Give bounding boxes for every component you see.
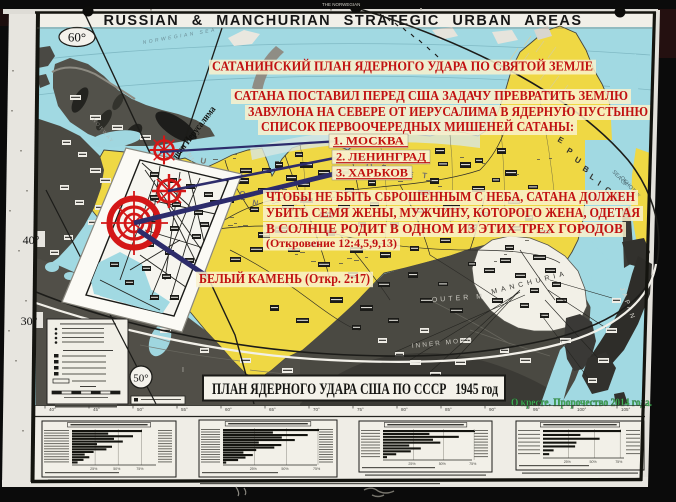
svg-text:I: I	[182, 367, 184, 374]
svg-text:2. ЛЕНИНГРАД: 2. ЛЕНИНГРАД	[336, 150, 427, 164]
svg-text:3. ХАРЬКОВ: 3. ХАРЬКОВ	[336, 166, 408, 180]
svg-text:50%: 50%	[113, 467, 121, 471]
svg-text:50%: 50%	[590, 460, 598, 464]
svg-text:В СОЛНЦЕ РОДИТ В ОДНОМ ИЗ ЭТИХ: В СОЛНЦЕ РОДИТ В ОДНОМ ИЗ ЭТИХ ТРЕХ ГОРО…	[266, 221, 623, 236]
svg-text:УБИТЬ СЕМЯ ЖЕНЫ, МУЖЧИНУ, КОТО: УБИТЬ СЕМЯ ЖЕНЫ, МУЖЧИНУ, КОТОРОГО ЖЕНА,…	[266, 205, 640, 220]
svg-text:55°: 55°	[181, 407, 188, 412]
svg-text:70°: 70°	[313, 407, 320, 412]
svg-text:75%: 75%	[469, 462, 477, 466]
svg-text:85°: 85°	[445, 407, 452, 412]
svg-text:25%: 25%	[408, 462, 416, 466]
svg-text:50%: 50%	[281, 467, 289, 471]
svg-text:ЧТОБЫ НЕ БЫТЬ СБРОШЕННЫМ С НЕБ: ЧТОБЫ НЕ БЫТЬ СБРОШЕННЫМ С НЕБА, САТАНА …	[266, 189, 636, 204]
svg-text:80°: 80°	[401, 407, 408, 412]
svg-text:САТАНИНСКИЙ ПЛАН ЯДЕРНОГО УДАР: САТАНИНСКИЙ ПЛАН ЯДЕРНОГО УДАРА ПО СВЯТО…	[212, 59, 593, 74]
svg-text:1. МОСКВА: 1. МОСКВА	[333, 134, 404, 148]
svg-text:45°: 45°	[93, 407, 100, 412]
svg-text:90°: 90°	[489, 407, 496, 412]
svg-text:(Откровение 12:4,5,9,13): (Откровение 12:4,5,9,13)	[266, 238, 397, 250]
svg-text:50°: 50°	[137, 407, 144, 412]
svg-text:ПЛАН ЯДЕРНОГО УДАРА США ПО ССС: ПЛАН ЯДЕРНОГО УДАРА США ПО СССР 1945 год	[212, 381, 498, 398]
svg-text:25%: 25%	[564, 460, 572, 464]
svg-text:95°: 95°	[533, 407, 540, 412]
svg-text:75%: 75%	[615, 460, 623, 464]
svg-text:75%: 75%	[136, 467, 144, 471]
svg-text:50°: 50°	[133, 373, 148, 385]
svg-text:60°: 60°	[68, 30, 86, 45]
svg-text:105°: 105°	[621, 407, 631, 412]
svg-text:75%: 75%	[313, 467, 321, 471]
svg-text:60°: 60°	[225, 407, 232, 412]
svg-text:THE NORWEGIAN: THE NORWEGIAN	[322, 2, 360, 7]
svg-text:25%: 25%	[250, 467, 258, 471]
svg-text:50%: 50%	[439, 462, 447, 466]
svg-text:СПИСОК ПЕРВООЧЕРЕДНЫХ МИШЕНЕЙ: СПИСОК ПЕРВООЧЕРЕДНЫХ МИШЕНЕЙ САТАНЫ:	[261, 119, 574, 134]
svg-text:100°: 100°	[577, 407, 587, 412]
svg-text:ЗАВУЛОНА НА СЕВЕРЕ ОТ ИЕРУСАЛИ: ЗАВУЛОНА НА СЕВЕРЕ ОТ ИЕРУСАЛИМА В ЯДЕРН…	[248, 104, 648, 119]
svg-text:40°: 40°	[49, 407, 56, 412]
svg-text:T: T	[422, 171, 428, 180]
svg-text:75°: 75°	[357, 407, 364, 412]
svg-text:БЕЛЫЙ КАМЕНЬ (Откр. 2:17): БЕЛЫЙ КАМЕНЬ (Откр. 2:17)	[199, 270, 370, 287]
svg-text:65°: 65°	[269, 407, 276, 412]
svg-text:RUSSIAN & MANCHURIAN STRATEGIC: RUSSIAN & MANCHURIAN STRATEGIC URBAN ARE…	[103, 13, 582, 29]
svg-text:25%: 25%	[90, 467, 98, 471]
svg-text:САТАНА ПОСТАВИЛ ПЕРЕД США ЗАДА: САТАНА ПОСТАВИЛ ПЕРЕД США ЗАДАЧУ ПРЕВРАТ…	[234, 88, 628, 103]
